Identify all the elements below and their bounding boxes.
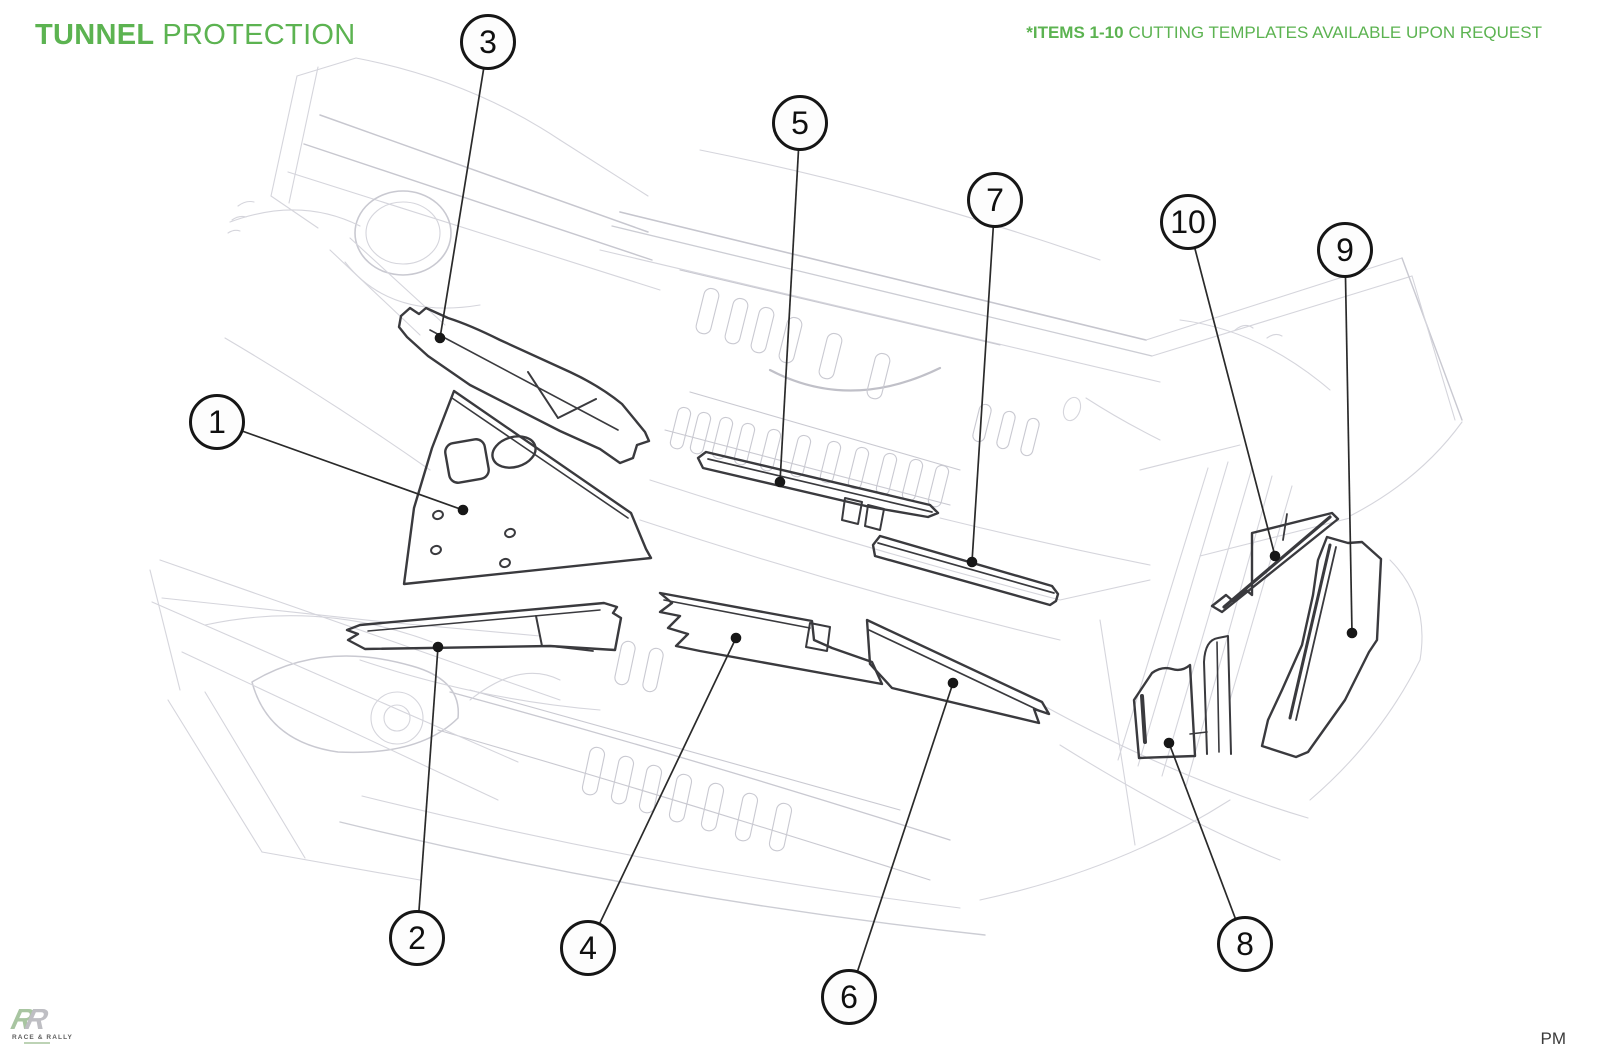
part-9-outline — [1262, 537, 1381, 757]
leader-dot-4 — [731, 633, 742, 644]
callout-7-label: 7 — [986, 182, 1004, 219]
leader-line-3 — [440, 42, 488, 338]
leader-dot-7 — [967, 557, 978, 568]
tunnel-protection-page: 1 2 3 4 5 6 7 8 9 10 TUNNELPROTECTION *I… — [0, 0, 1600, 1054]
callout-4-label: 4 — [579, 930, 597, 967]
part-7-outline — [873, 536, 1058, 605]
leader-line-10 — [1188, 222, 1275, 556]
callout-1-label: 1 — [208, 404, 226, 441]
callout-8: 8 — [1217, 916, 1273, 972]
callout-2-label: 2 — [408, 920, 426, 957]
background-sketch — [150, 58, 1462, 935]
callout-6-label: 6 — [840, 979, 858, 1016]
callout-5-label: 5 — [791, 105, 809, 142]
leader-line-6 — [849, 683, 953, 997]
callout-2: 2 — [389, 910, 445, 966]
leader-line-9 — [1345, 250, 1352, 633]
leader-line-8 — [1169, 743, 1245, 944]
callout-1: 1 — [189, 394, 245, 450]
callout-9: 9 — [1317, 222, 1373, 278]
part-6-outline — [867, 620, 1049, 723]
hull-rails-sketch — [600, 150, 1462, 556]
leader-line-5 — [780, 123, 800, 482]
callout-5: 5 — [772, 95, 828, 151]
callout-8-label: 8 — [1236, 926, 1254, 963]
callout-6: 6 — [821, 969, 877, 1025]
protection-parts — [347, 308, 1381, 758]
part-5-outline — [698, 452, 938, 530]
part-4-outline — [660, 593, 882, 684]
part-8-outline — [1134, 636, 1231, 758]
leader-dot-2 — [433, 642, 444, 653]
part-1-outline — [404, 391, 651, 584]
leader-line-4 — [588, 638, 736, 948]
callout-10: 10 — [1160, 194, 1216, 250]
callout-7: 7 — [967, 172, 1023, 228]
callout-3: 3 — [460, 14, 516, 70]
leader-dot-1 — [458, 505, 469, 516]
cab-cage-sketch — [150, 58, 660, 690]
part-2-outline — [347, 603, 621, 651]
suspension-sketch — [152, 560, 985, 935]
leader-line-7 — [972, 200, 995, 562]
leader-line-2 — [417, 647, 438, 938]
callout-3-label: 3 — [479, 24, 497, 61]
callout-10-label: 10 — [1170, 204, 1206, 241]
vehicle-underside-diagram — [0, 0, 1600, 1054]
leader-dot-5 — [775, 477, 786, 488]
callout-9-label: 9 — [1336, 232, 1354, 269]
callout-4: 4 — [560, 920, 616, 976]
leader-dot-9 — [1347, 628, 1358, 639]
leader-lines — [217, 42, 1352, 997]
leader-dot-3 — [435, 333, 446, 344]
leader-dot-8 — [1164, 738, 1175, 749]
leader-dot-6 — [948, 678, 959, 689]
leader-dot-10 — [1270, 551, 1281, 562]
